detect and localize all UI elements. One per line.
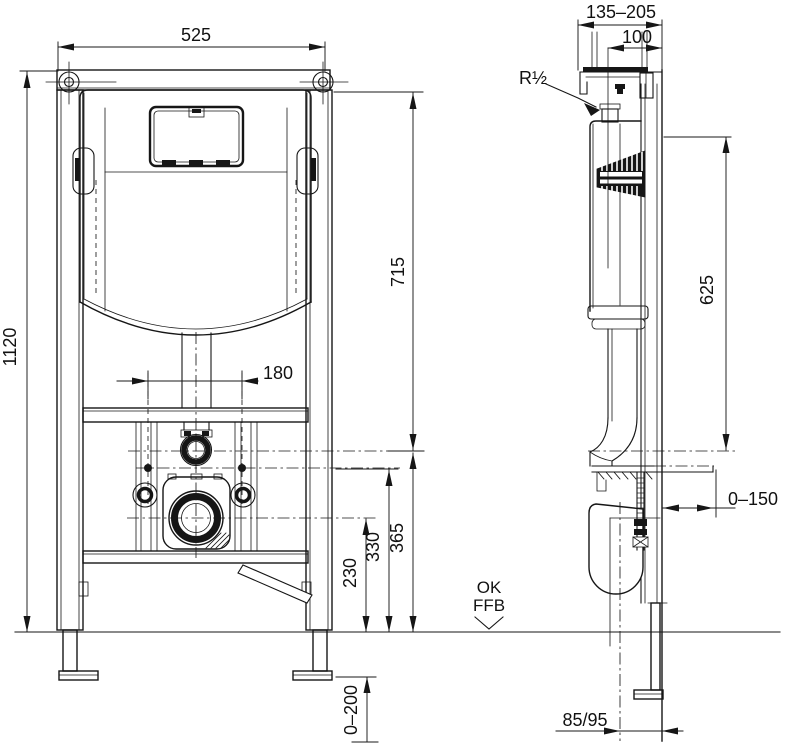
drain-bend <box>589 504 660 646</box>
water-supply <box>546 84 620 122</box>
side-view: 135–205 100 R½ 625 0–150 85/95 <box>473 2 778 741</box>
access-window <box>150 107 243 166</box>
installation-drawing-canvas: 525 1120 715 365 330 <box>0 0 795 753</box>
diagonal-brace <box>238 565 312 603</box>
dim-label-drain-offset: 85/95 <box>562 710 607 730</box>
adjustable-feet <box>59 630 332 680</box>
dim-label-supply-offset: 100 <box>622 27 652 47</box>
technical-drawing: 525 1120 715 365 330 <box>0 0 795 753</box>
dim-label-top-to-flush: 715 <box>388 257 408 287</box>
label-ok: OK <box>477 578 502 597</box>
floor-marker-chevron <box>475 617 503 629</box>
dim-label-plate-range: 0–150 <box>728 489 778 509</box>
dim-label-overall-width: 525 <box>181 25 211 45</box>
cistern-side <box>588 121 648 329</box>
dim-label-flush-height: 365 <box>387 523 407 553</box>
top-fixing-bolts <box>46 62 348 104</box>
dim-label-drain-height: 230 <box>340 558 360 588</box>
leader-line <box>546 84 596 107</box>
flush-pipe-side <box>590 329 637 466</box>
support-plate <box>592 466 714 491</box>
dim-label-overall-height: 1120 <box>0 328 20 367</box>
dim-label-depth-range: 135–205 <box>586 2 656 22</box>
label-ffb: FFB <box>473 596 505 615</box>
front-view: 525 1120 715 365 330 <box>0 25 424 742</box>
cistern-front <box>80 90 311 335</box>
carry-tabs <box>73 148 318 194</box>
label-supply-thread: R½ <box>519 68 547 88</box>
side-dimensions: 135–205 100 R½ 625 0–150 85/95 <box>519 2 778 735</box>
floor-level-marker: OK FFB <box>473 578 505 629</box>
dim-label-bolt-spacing: 180 <box>263 363 293 383</box>
dim-label-foot-range: 0–200 <box>341 685 361 735</box>
dim-label-supply-to-flush: 625 <box>697 275 717 305</box>
serrated-bracket <box>597 151 645 197</box>
